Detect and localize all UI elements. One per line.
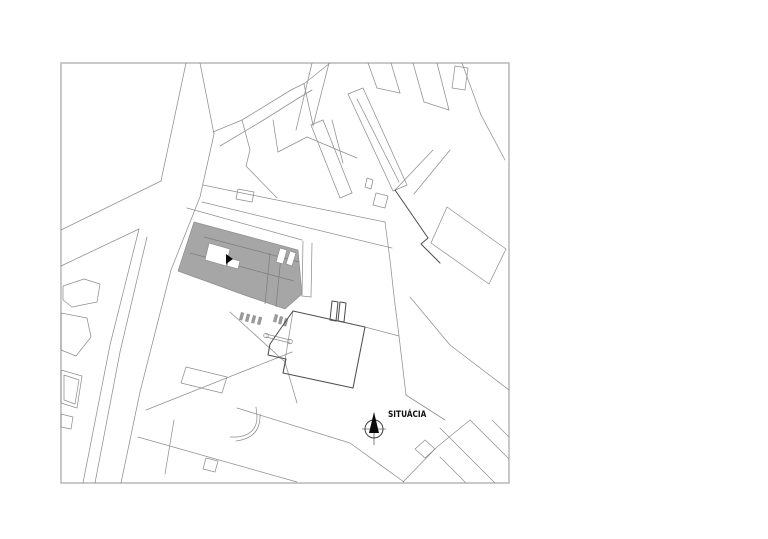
site-plan-canvas: SITUÁCIA	[0, 0, 768, 539]
north-arrow-icon	[362, 412, 386, 445]
plan-title-label: SITUÁCIA	[388, 407, 427, 419]
page: SITUÁCIA	[0, 0, 768, 539]
